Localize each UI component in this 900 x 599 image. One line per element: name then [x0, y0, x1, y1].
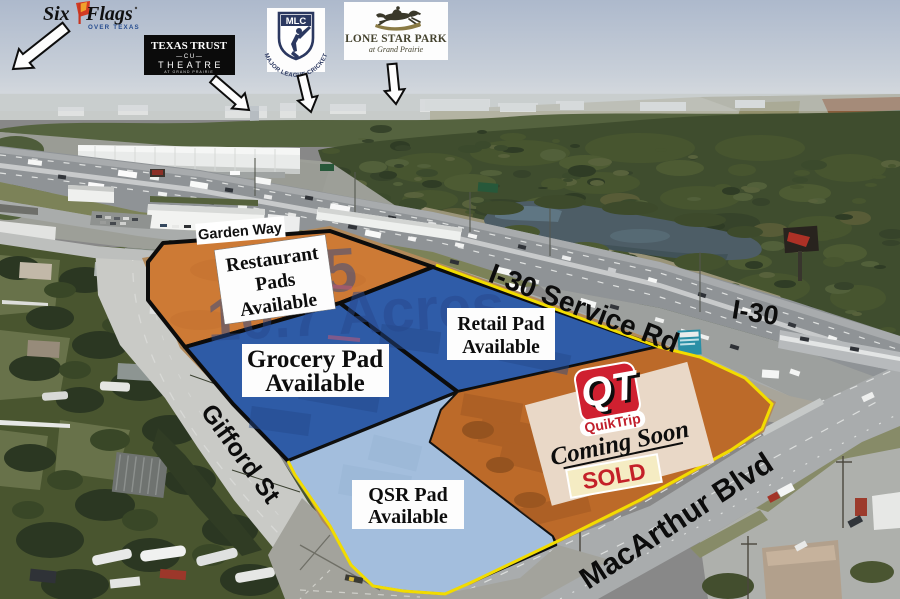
svg-text:OVER TEXAS: OVER TEXAS: [88, 24, 140, 31]
svg-text:Retail Pad: Retail Pad: [457, 314, 544, 335]
svg-text:TEXAS TRUST: TEXAS TRUST: [151, 40, 228, 52]
svg-text:LONE STAR PARK: LONE STAR PARK: [345, 33, 447, 45]
svg-text:Six: Six: [43, 3, 70, 25]
svg-text:AT GRAND PRAIRIE: AT GRAND PRAIRIE: [164, 70, 214, 74]
svg-text:MLC: MLC: [286, 16, 307, 27]
svg-text:Flags: Flags: [85, 3, 133, 25]
svg-text:Available: Available: [462, 337, 540, 358]
svg-text:THEATRE: THEATRE: [158, 60, 224, 70]
svg-text:Available: Available: [368, 506, 448, 528]
svg-text:at Grand Prairie: at Grand Prairie: [369, 45, 424, 54]
svg-text:Available: Available: [265, 370, 365, 397]
svg-text:Grocery Pad: Grocery Pad: [247, 346, 383, 373]
svg-text:QSR Pad: QSR Pad: [368, 484, 447, 506]
